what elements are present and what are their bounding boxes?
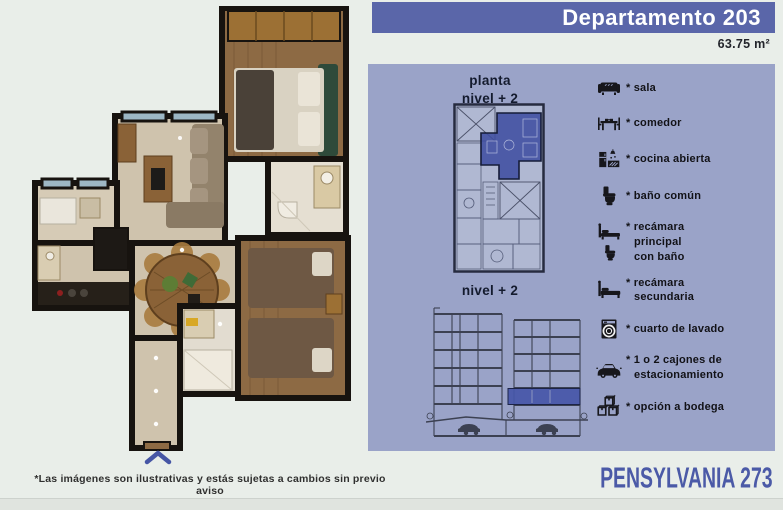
bed-icon: [592, 279, 626, 301]
dining-table-icon: [592, 111, 626, 135]
washing-machine-icon: [592, 316, 626, 342]
bed-with-bath-icon: [592, 222, 626, 262]
legend-item-bano: * baño común: [592, 183, 767, 209]
legend-item-cocina: * cocina abierta: [592, 146, 767, 172]
principal-bedroom: [222, 8, 346, 159]
entrance-arrow-icon: [144, 450, 172, 465]
highlighted-level: [508, 389, 580, 405]
legend-item-recamara-principal: * recámara principal con baño: [592, 220, 767, 265]
common-bathroom: [180, 306, 238, 394]
brand-logo: PENSYLVANIA 273: [455, 463, 773, 494]
legend-item-sala: * sala: [592, 76, 767, 100]
legend-item-recamara-secundaria: * recámara secundaria: [592, 276, 767, 306]
info-panel: planta nivel + 2: [368, 64, 775, 451]
car-icon: [592, 357, 626, 379]
storage-boxes-icon: [592, 394, 626, 422]
unit-area: 63.75 m²: [372, 37, 770, 51]
disclaimer-text: *Las imágenes son ilustrativas y estás s…: [30, 473, 390, 497]
legend-item-estacionamiento: * 1 o 2 cajones de estacionamiento: [592, 353, 767, 383]
toilet-icon: [592, 183, 626, 209]
legend-item-lavado: * cuarto de lavado: [592, 316, 767, 342]
section-diagram-title: nivel + 2: [420, 282, 560, 300]
page-edge: [0, 498, 783, 510]
principal-bathroom: [268, 159, 346, 235]
legend-item-bodega: * opción a bodega: [592, 394, 767, 422]
legend-item-comedor: * comedor: [592, 111, 767, 135]
living-room: [115, 112, 225, 243]
kitchen-icon: [592, 146, 626, 172]
amenities-legend: * sala * comedor: [592, 76, 767, 433]
building-plan-diagram: [453, 103, 545, 273]
plan-diagram-title: planta nivel + 2: [420, 72, 560, 107]
apartment-floor-plan: [20, 6, 362, 451]
kitchen: [35, 228, 135, 308]
secondary-bedroom: [238, 238, 348, 398]
page-title: Departamento 203: [372, 2, 775, 33]
building-section-diagram: [426, 300, 588, 448]
entry-corridor: [132, 338, 180, 450]
sofa-icon: [592, 76, 626, 100]
